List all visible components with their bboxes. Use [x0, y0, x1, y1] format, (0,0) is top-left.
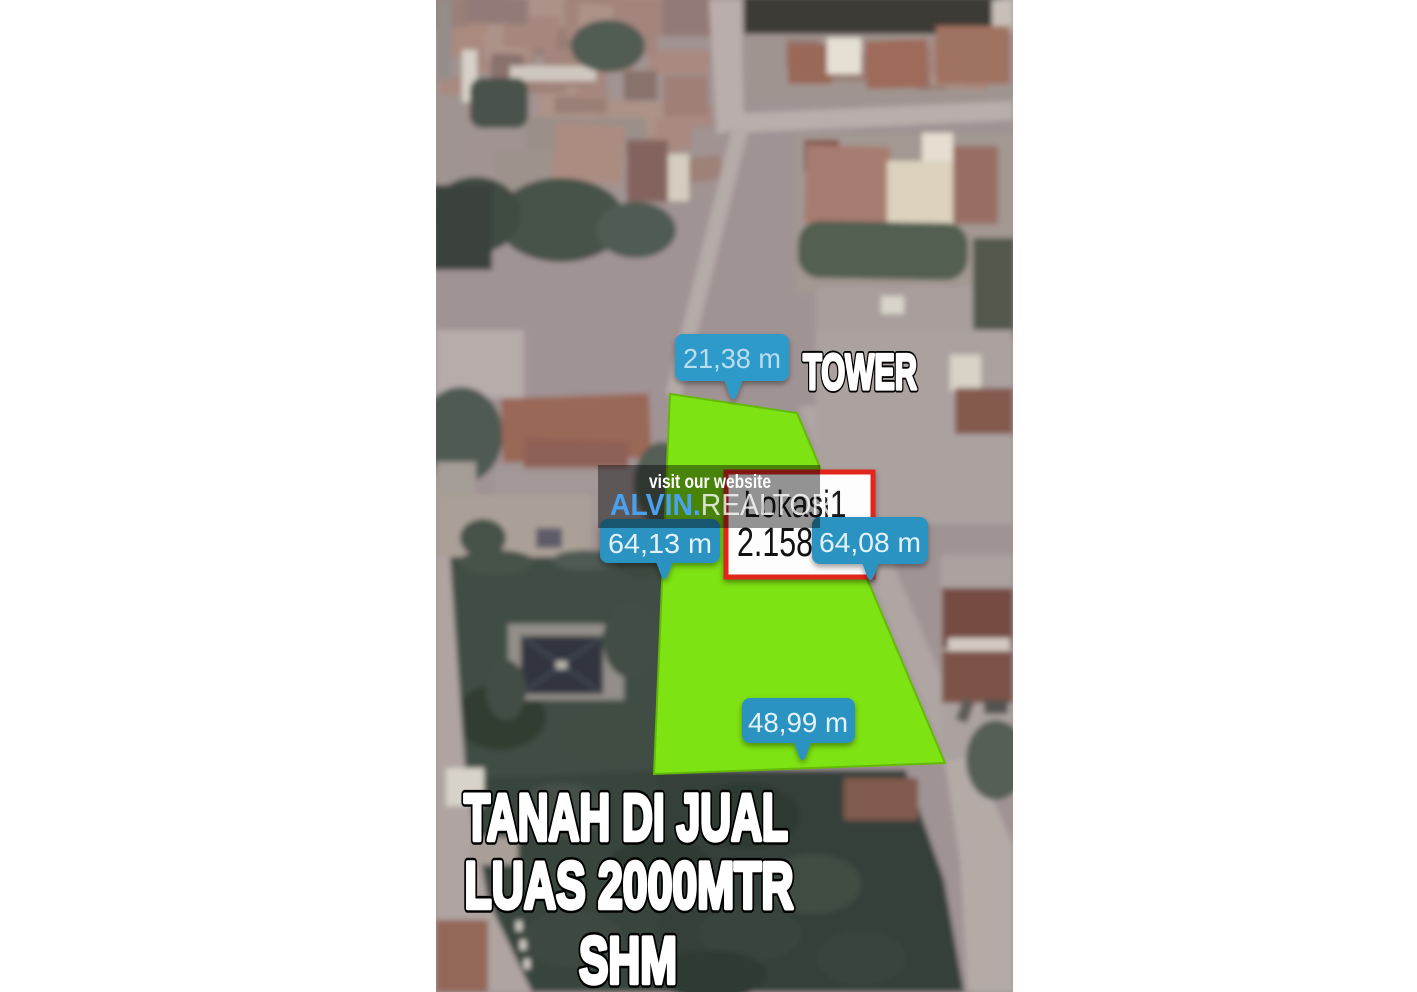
svg-text:LUAS 2000MTR: LUAS 2000MTR [465, 848, 794, 922]
svg-text:64,13 m: 64,13 m [608, 528, 712, 559]
svg-text:48,99 m: 48,99 m [748, 707, 848, 738]
svg-text:21,38 m: 21,38 m [683, 343, 781, 374]
svg-text:TANAH DI JUAL: TANAH DI JUAL [464, 780, 788, 854]
svg-text:TOWER: TOWER [803, 344, 917, 400]
svg-text:SHM: SHM [579, 923, 677, 992]
svg-text:64,08 m: 64,08 m [819, 527, 921, 558]
svg-text:ALVIN.REALTOR: ALVIN.REALTOR [610, 487, 832, 522]
